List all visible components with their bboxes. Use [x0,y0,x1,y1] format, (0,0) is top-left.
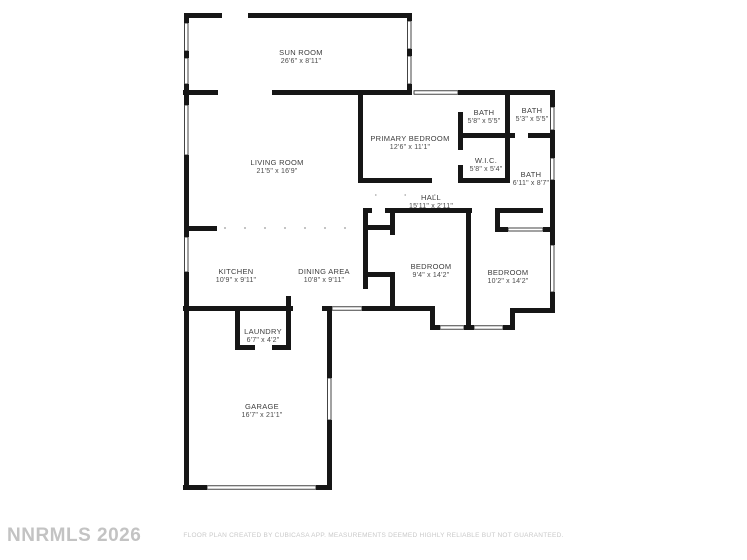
room-label-bedroom-1: BEDROOM9'4" x 14'2" [411,262,452,280]
room-dimensions: 21'5" x 16'9" [250,167,303,176]
room-label-garage: GARAGE16'7" x 21'1" [242,402,283,420]
room-dimensions: 10'8" x 9'11" [298,276,350,285]
room-label-kitchen: KITCHEN10'9" x 9'11" [216,267,256,285]
room-name: BEDROOM [488,268,529,277]
room-dimensions: 16'7" x 21'1" [242,411,283,420]
room-label-bath-2: BATH5'3" x 5'5" [516,106,549,124]
room-label-laundry: LAUNDRY6'7" x 4'2" [244,327,282,345]
room-label-sun-room: SUN ROOM26'6" x 8'11" [279,48,323,66]
room-name: BATH [513,170,549,179]
room-dimensions: 9'4" x 14'2" [411,271,452,280]
room-dimensions: 12'6" x 11'1" [370,143,449,152]
room-label-bath-3: BATH6'11" x 8'7" [513,170,549,188]
room-label-wic: W.I.C.5'8" x 5'4" [470,156,503,174]
room-labels-layer: SUN ROOM26'6" x 8'11"LIVING ROOM21'5" x … [0,0,747,560]
room-label-bedroom-2: BEDROOM10'2" x 14'2" [488,268,529,286]
room-label-bath-1: BATH5'8" x 5'5" [468,108,501,126]
room-name: W.I.C. [470,156,503,165]
disclaimer-text: FLOOR PLAN CREATED BY CUBICASA APP. MEAS… [0,532,747,539]
room-name: BEDROOM [411,262,452,271]
room-dimensions: 6'11" x 8'7" [513,179,549,188]
room-name: PRIMARY BEDROOM [370,134,449,143]
room-dimensions: 15'11" x 2'11" [409,202,453,211]
room-name: DINING AREA [298,267,350,276]
room-dimensions: 5'3" x 5'5" [516,115,549,124]
room-name: SUN ROOM [279,48,323,57]
room-name: LAUNDRY [244,327,282,336]
room-name: HALL [409,193,453,202]
room-name: LIVING ROOM [250,158,303,167]
floorplan-canvas: SUN ROOM26'6" x 8'11"LIVING ROOM21'5" x … [0,0,747,560]
room-dimensions: 10'2" x 14'2" [488,277,529,286]
room-label-hall: HALL15'11" x 2'11" [409,193,453,211]
room-name: BATH [468,108,501,117]
room-label-primary-bedroom: PRIMARY BEDROOM12'6" x 11'1" [370,134,449,152]
room-name: KITCHEN [216,267,256,276]
room-dimensions: 26'6" x 8'11" [279,57,323,66]
room-dimensions: 5'8" x 5'4" [470,165,503,174]
room-label-living-room: LIVING ROOM21'5" x 16'9" [250,158,303,176]
room-name: BATH [516,106,549,115]
room-dimensions: 6'7" x 4'2" [244,336,282,345]
room-dimensions: 5'8" x 5'5" [468,117,501,126]
room-name: GARAGE [242,402,283,411]
room-label-dining-area: DINING AREA10'8" x 9'11" [298,267,350,285]
room-dimensions: 10'9" x 9'11" [216,276,256,285]
